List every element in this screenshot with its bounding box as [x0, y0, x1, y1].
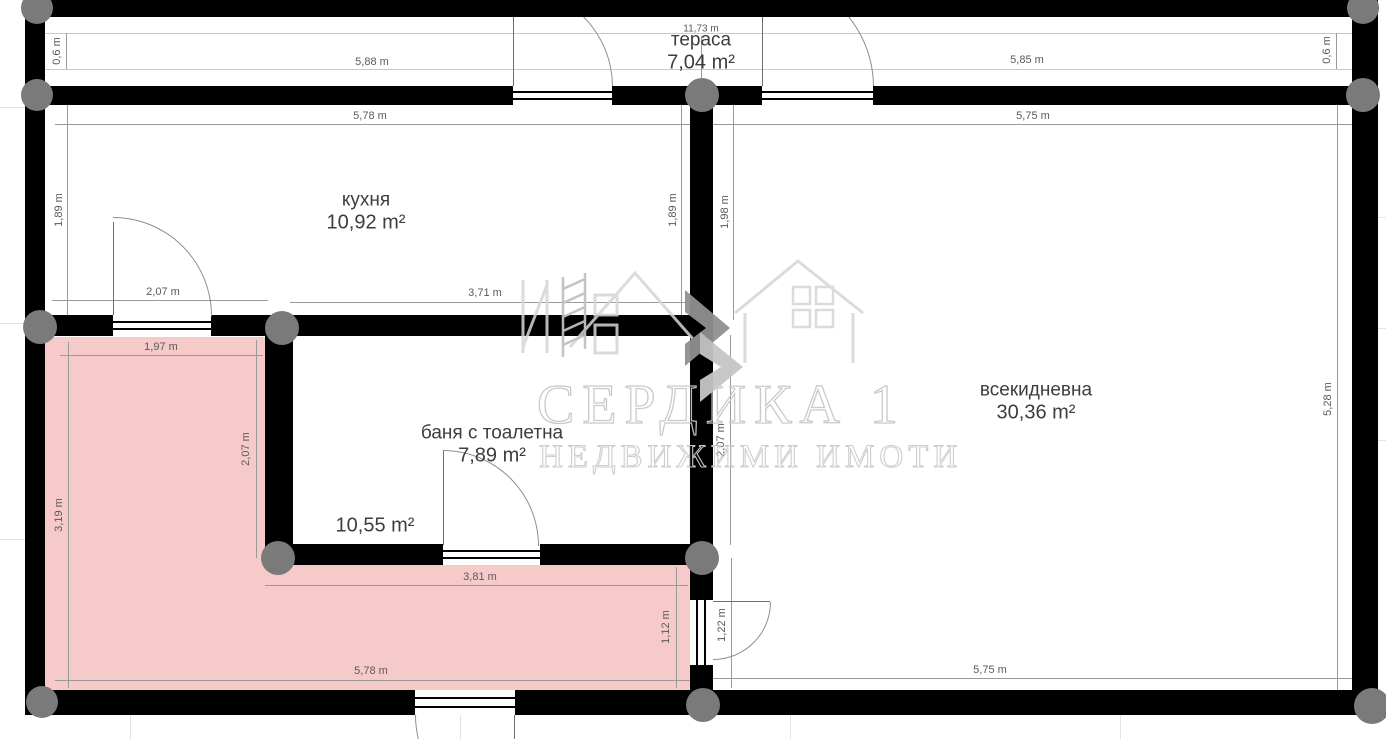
balcony-door-swing-arc [513, 17, 613, 86]
column-marker [261, 541, 295, 575]
dim-line [55, 124, 690, 125]
bathroom-door-sill [443, 544, 540, 565]
column-marker [21, 79, 53, 111]
grid-line [1120, 715, 1121, 739]
dim-corridor-top: 1,97 m [144, 341, 178, 353]
wall-exterior-top [43, 0, 1378, 17]
dim-kitchen-top: 5,78 m [353, 110, 387, 122]
dim-corridor-left: 3,19 m [53, 498, 65, 532]
kitchen-door-swing-arc [113, 217, 212, 316]
corridor-area-fill [265, 565, 690, 690]
grid-line [0, 539, 25, 540]
kitchen-door-sill [113, 315, 211, 336]
room-label-terrace: тераса 7,04 m² [667, 30, 735, 75]
dim-kitchen-right: 1,89 m [667, 193, 679, 227]
room-name: тераса [667, 30, 735, 52]
room-area: 10,92 m² [327, 211, 406, 234]
terrace-door-window [513, 86, 612, 105]
column-marker [1346, 78, 1380, 112]
dim-line [676, 567, 677, 688]
dim-line [67, 105, 68, 315]
dim-terrace-depth-left: 0,6 m [51, 37, 63, 65]
exit-door-swing-arc [415, 715, 516, 739]
dim-line [1336, 33, 1337, 69]
grid-line [1378, 440, 1386, 441]
living-door-opening [690, 600, 713, 665]
room-label-kitchen: кухня 10,92 m² [327, 190, 406, 235]
corridor-area-fill [45, 337, 265, 690]
watermark-subtitle-text: НЕДВИЖИМИ ИМОТИ [539, 439, 962, 475]
room-label-corridor: 10,55 m² [336, 515, 415, 538]
dim-line [256, 340, 257, 558]
dim-line [265, 585, 688, 586]
column-marker [685, 78, 719, 112]
column-marker [686, 688, 720, 722]
dim-line [60, 355, 263, 356]
living-door-swing-arc [713, 602, 771, 660]
dim-bath-left: 2,07 m [240, 432, 252, 466]
dim-terrace-section-left: 5,88 m [355, 56, 389, 68]
dim-line [1337, 105, 1338, 690]
dim-line [66, 33, 67, 69]
room-area: 10,55 m² [336, 515, 415, 538]
grid-line [0, 323, 25, 324]
column-marker [685, 541, 719, 575]
wall-bathroom-west [265, 315, 293, 565]
dim-line [713, 678, 1352, 679]
bottom-exit-opening [415, 690, 515, 715]
column-marker [265, 311, 299, 345]
dim-terrace-depth-right: 0,6 m [1321, 36, 1333, 64]
column-marker [23, 310, 57, 344]
room-area: 7,04 m² [667, 51, 735, 74]
dim-living-left: 1,98 m [719, 195, 731, 229]
watermark: СЕРДИКА 1 НЕДВИЖИМИ ИМОТИ [495, 235, 1015, 480]
dim-corridor-full: 5,78 m [354, 665, 388, 677]
grid-line [0, 107, 25, 108]
room-name: кухня [327, 190, 406, 212]
terrace-door-window [762, 86, 873, 105]
balcony-door-swing-arc [762, 17, 874, 86]
dim-terrace-section-right: 5,85 m [1010, 54, 1044, 66]
dim-line [713, 124, 1352, 125]
grid-line [790, 715, 791, 739]
grid-line [1378, 217, 1386, 218]
dim-corridor-door: 1,12 m [660, 610, 672, 644]
column-marker [26, 686, 58, 718]
dim-line [55, 680, 690, 681]
floor-plan: 0,6 m 5,88 m 11,73 m 5,85 m 0,6 m 5,78 m… [0, 0, 1386, 739]
column-marker [1354, 688, 1386, 724]
dim-corridor-bottom: 3,81 m [463, 571, 497, 583]
dim-living-top: 5,75 m [1016, 110, 1050, 122]
dim-living-right: 5,28 m [1322, 382, 1334, 416]
dim-line [68, 342, 69, 688]
grid-line [1378, 328, 1386, 329]
dim-kitchen-left: 1,89 m [53, 193, 65, 227]
watermark-brand-text: СЕРДИКА 1 [537, 374, 906, 436]
grid-line [130, 715, 131, 739]
dim-living-bottom: 5,75 m [973, 664, 1007, 676]
